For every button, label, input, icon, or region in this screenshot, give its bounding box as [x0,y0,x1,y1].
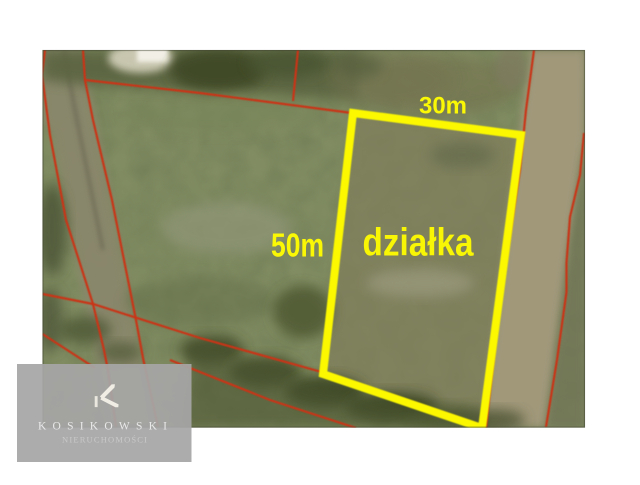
svg-text:50m: 50m [271,227,324,264]
svg-text:KOSIKOWSKI: KOSIKOWSKI [38,421,172,433]
svg-text:NIERUCHOMOŚCI: NIERUCHOMOŚCI [62,435,150,445]
svg-text:działka: działka [363,222,474,265]
svg-text:30m: 30m [419,93,467,120]
